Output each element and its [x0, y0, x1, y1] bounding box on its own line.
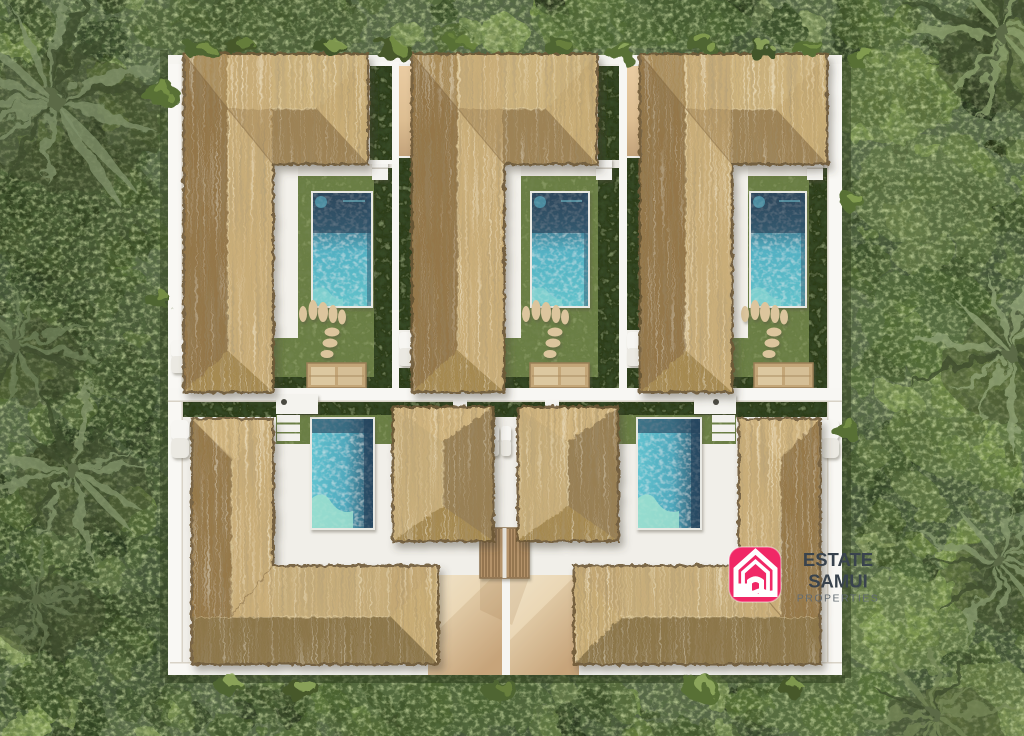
- svg-text:PROPERTIES: PROPERTIES: [797, 593, 880, 605]
- svg-text:ESTATE: ESTATE: [803, 549, 873, 570]
- svg-text:SAMUI: SAMUI: [808, 571, 868, 592]
